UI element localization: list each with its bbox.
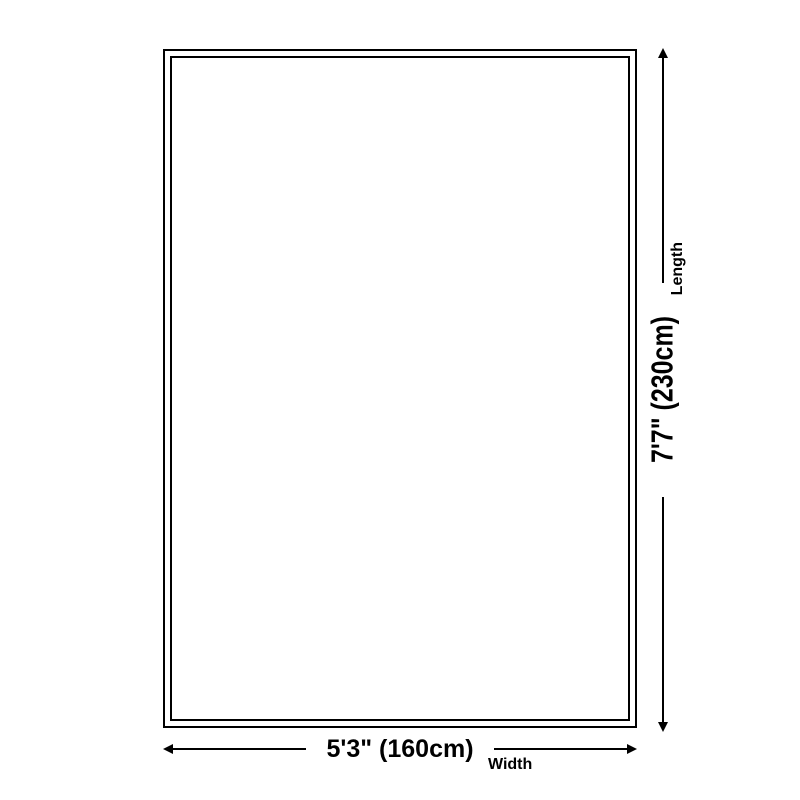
length-dimension-line-bottom xyxy=(662,497,664,722)
width-value: 5'3" (160cm) xyxy=(326,737,473,762)
rug-outline xyxy=(163,49,637,728)
length-label: Length xyxy=(669,242,687,295)
width-dimension: 5'3" (160cm) Width xyxy=(163,739,637,759)
width-label: Width xyxy=(488,756,532,774)
width-dimension-line-left xyxy=(173,748,306,750)
arrow-up-icon xyxy=(658,48,668,58)
arrow-right-icon xyxy=(627,744,637,754)
length-dimension-line-top xyxy=(662,58,664,283)
arrow-left-icon xyxy=(163,744,173,754)
length-value: 7'7" (230cm) xyxy=(648,316,679,463)
length-dimension: 7'7" (230cm) Length xyxy=(643,48,683,732)
size-diagram: 7'7" (230cm) Length 5'3" (160cm) Width xyxy=(0,0,800,800)
arrow-down-icon xyxy=(658,722,668,732)
rug-inner-outline xyxy=(170,56,630,721)
width-dimension-line-right xyxy=(494,748,627,750)
